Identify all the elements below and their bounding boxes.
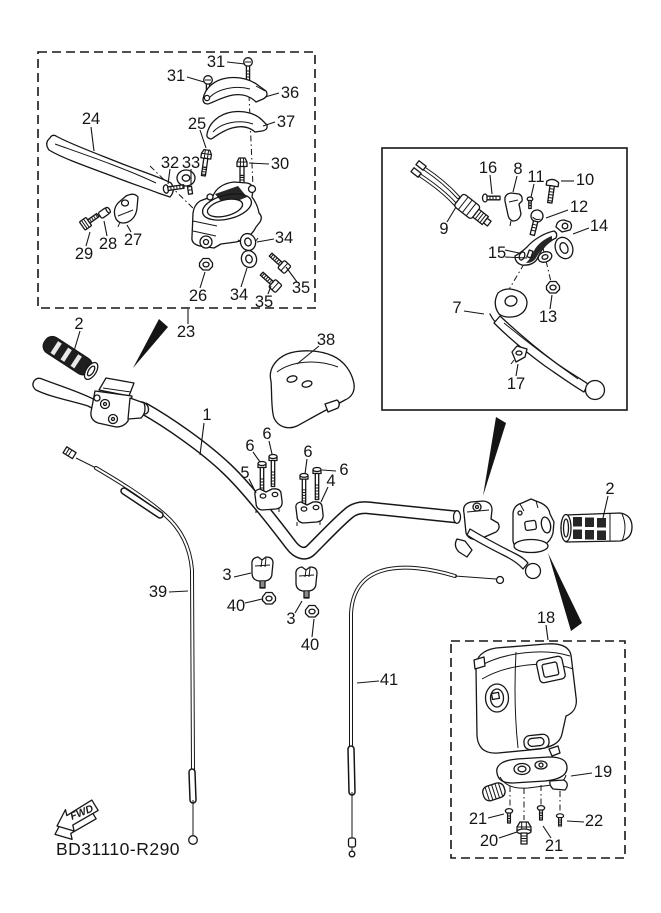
housing-screw-21 <box>537 806 544 820</box>
fwd-arrow: FWD <box>48 798 105 844</box>
part-label-15: 15 <box>488 244 506 262</box>
part-label-32: 32 <box>161 154 179 172</box>
leader-line-34 <box>241 268 247 287</box>
leader-line-29 <box>86 232 90 246</box>
leader-line-20 <box>499 832 517 838</box>
lever-bushing <box>98 206 112 218</box>
reservoir-bolt-30 <box>237 158 247 184</box>
part-label-17: 17 <box>507 375 525 393</box>
switch-assembly-parts <box>474 644 576 844</box>
leader-line-18 <box>546 625 548 640</box>
leader-line-2 <box>74 331 80 351</box>
clamp-screw-6 <box>300 474 308 504</box>
leader-line-13 <box>550 295 552 309</box>
drawing-code: BD31110-R290 <box>56 839 180 859</box>
leader-line-40 <box>312 619 314 637</box>
part-label-2: 2 <box>605 480 614 498</box>
part-label-8: 8 <box>513 160 522 178</box>
left-grip <box>40 333 101 382</box>
leader-line-3 <box>295 601 302 613</box>
parts-diagram-page: FWD BD31110-R290 31313637242532333029282… <box>0 0 661 913</box>
part-label-19: 19 <box>594 763 612 781</box>
brake-lever-assembly <box>33 378 145 427</box>
handlebar-pad <box>270 351 354 428</box>
part-label-16: 16 <box>479 159 497 177</box>
throttle-housing-19 <box>481 757 567 802</box>
throttle-cable-39 <box>63 447 197 844</box>
leader-line-39 <box>169 591 188 592</box>
part-label-12: 12 <box>570 198 588 216</box>
pivot-nut-13 <box>547 282 560 294</box>
part-label-28: 28 <box>99 235 117 253</box>
part-label-9: 9 <box>439 220 448 238</box>
leader-line-22 <box>567 821 584 822</box>
switch-housing-18 <box>474 644 576 756</box>
mount-bolt-35 <box>267 251 291 274</box>
part-label-24: 24 <box>82 110 100 128</box>
leader-line-8 <box>513 176 517 192</box>
part-label-13: 13 <box>539 308 557 326</box>
cable-clamp-17 <box>511 346 527 364</box>
part-label-34: 34 <box>230 286 248 304</box>
damper-washer-34 <box>239 249 259 270</box>
lower-holder-3 <box>252 557 273 588</box>
part-label-36: 36 <box>281 84 299 102</box>
part-label-41: 41 <box>380 671 398 689</box>
leader-line-40 <box>245 599 262 603</box>
housing-screw-21 <box>505 809 512 823</box>
handlebar-parts-diagram: FWD BD31110-R290 31313637242532333029282… <box>0 0 661 913</box>
part-label-27: 27 <box>124 231 142 249</box>
part-label-26: 26 <box>189 287 207 305</box>
switch-screw-16 <box>483 194 501 202</box>
part-label-23: 23 <box>177 323 195 341</box>
holder-nut-40 <box>263 593 276 605</box>
brake-master-cylinder-detail-box <box>38 52 315 308</box>
part-label-35: 35 <box>255 293 273 311</box>
part-label-29: 29 <box>75 245 93 263</box>
lever-holder-lower <box>207 111 267 139</box>
upper-holder-4 <box>296 502 323 526</box>
clamp-screw-6 <box>269 455 277 487</box>
leader-line-19 <box>571 773 592 776</box>
part-label-6: 6 <box>339 461 348 479</box>
housing-screw-22 <box>556 814 563 826</box>
part-label-2: 2 <box>74 315 83 333</box>
part-label-21: 21 <box>545 837 563 855</box>
part-label-31: 31 <box>207 53 225 71</box>
perch-bolt <box>79 211 100 230</box>
part-label-6: 6 <box>303 443 312 461</box>
leader-line-28 <box>104 221 107 236</box>
part-label-33: 33 <box>182 154 200 172</box>
pointer-wedge-7 <box>483 417 506 496</box>
switch-bracket-8 <box>505 193 522 226</box>
part-label-31: 31 <box>167 67 185 85</box>
construction-line <box>249 95 253 187</box>
leader-line-6 <box>305 459 307 474</box>
part-label-35: 35 <box>292 279 310 297</box>
part-label-40: 40 <box>227 597 245 615</box>
leader-line-15 <box>505 250 519 253</box>
union-bolt-25 <box>198 149 212 176</box>
part-label-37: 37 <box>277 113 295 131</box>
part-label-6: 6 <box>262 425 271 443</box>
upper-holder-5 <box>255 489 282 513</box>
part-label-1: 1 <box>202 406 211 424</box>
leader-line-41 <box>357 681 379 683</box>
clamp-screw-6 <box>313 468 321 500</box>
part-label-38: 38 <box>317 331 335 349</box>
part-label-7: 7 <box>452 299 461 317</box>
lever-perch <box>114 194 138 227</box>
holder-bolt-10 <box>544 179 559 204</box>
part-label-4: 4 <box>326 472 335 490</box>
leader-line-3 <box>234 573 251 577</box>
lever-pin-33 <box>188 186 193 194</box>
part-label-34: 34 <box>275 229 293 247</box>
part-label-20: 20 <box>480 832 498 850</box>
part-label-40: 40 <box>301 636 319 654</box>
leader-line-24 <box>91 127 94 151</box>
holder-nut-40 <box>306 606 319 618</box>
part-label-6: 6 <box>245 437 254 455</box>
flange-nut-26 <box>200 259 213 271</box>
part-label-3: 3 <box>222 566 231 584</box>
leader-line-12 <box>546 210 568 218</box>
part-label-14: 14 <box>590 217 608 235</box>
construction-lines <box>510 785 560 820</box>
leader-line-31 <box>187 77 204 82</box>
part-label-30: 30 <box>271 155 289 173</box>
leader-line-6 <box>322 470 336 471</box>
leader-line-16 <box>490 175 492 194</box>
leader-line-26 <box>200 272 205 288</box>
pointer-wedges <box>133 319 582 631</box>
part-label-39: 39 <box>149 583 167 601</box>
right-grip <box>561 513 632 542</box>
clutch-lever-holder-parts <box>411 161 605 400</box>
part-label-3: 3 <box>286 610 295 628</box>
leader-line-21 <box>488 814 504 818</box>
leader-line-31 <box>227 62 245 64</box>
part-label-18: 18 <box>537 609 555 627</box>
part-label-10: 10 <box>576 171 594 189</box>
pointer-wedge-23 <box>133 319 168 368</box>
pivot-bolt-12 <box>526 209 544 237</box>
part-label-21: 21 <box>469 810 487 828</box>
part-label-25: 25 <box>188 115 206 133</box>
right-switch-housing <box>513 499 554 553</box>
leader-line-7 <box>464 311 484 314</box>
part-label-5: 5 <box>240 464 249 482</box>
leader-line-14 <box>573 228 589 234</box>
bracket-screw-11 <box>527 197 533 209</box>
part-label-22: 22 <box>585 812 603 830</box>
part-label-11: 11 <box>527 168 544 186</box>
leader-line-34 <box>257 239 274 242</box>
lower-holder-3 <box>296 567 317 598</box>
throttle-bolt-20 <box>517 822 531 844</box>
